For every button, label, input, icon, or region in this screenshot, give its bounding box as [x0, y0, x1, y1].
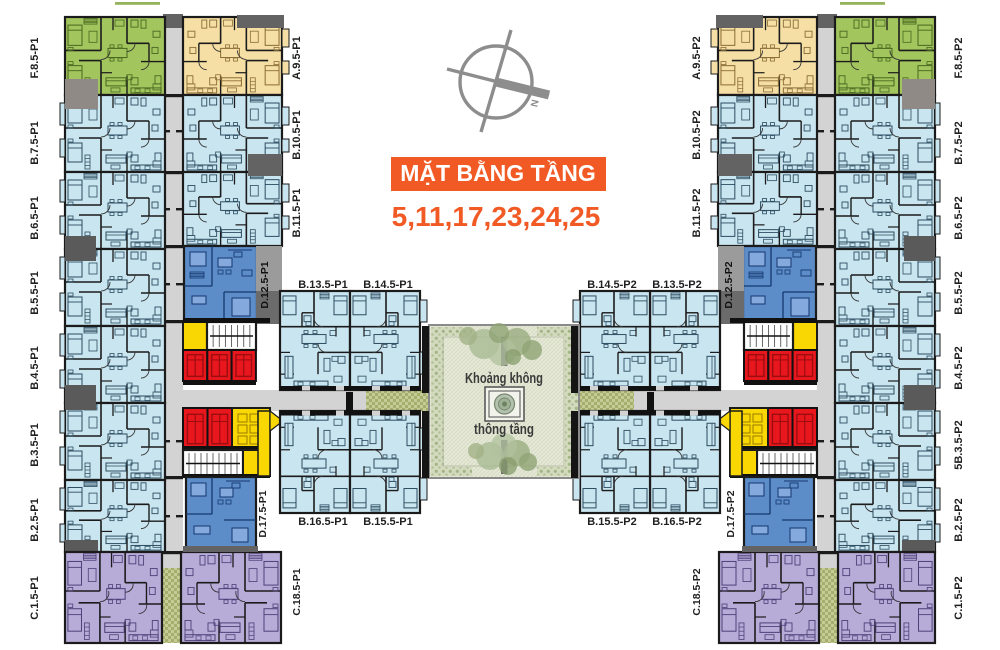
svg-text:B.13.5-P1: B.13.5-P1	[298, 279, 348, 291]
svg-text:B.5.5-P2: B.5.5-P2	[953, 271, 965, 314]
svg-text:B.7.5-P2: B.7.5-P2	[953, 121, 965, 164]
svg-text:B.3.5-P1: B.3.5-P1	[29, 423, 41, 466]
svg-text:C.1.5-P1: C.1.5-P1	[29, 576, 41, 619]
svg-text:F.8.5-P2: F.8.5-P2	[953, 38, 965, 79]
svg-text:B.14.5-P1: B.14.5-P1	[363, 279, 413, 291]
svg-text:B.5.5-P1: B.5.5-P1	[29, 271, 41, 314]
svg-text:B.4.5-P1: B.4.5-P1	[29, 346, 41, 389]
svg-text:B.13.5-P2: B.13.5-P2	[652, 279, 702, 291]
svg-text:D.12.5-P2: D.12.5-P2	[723, 261, 735, 308]
svg-text:C.18.5-P1: C.18.5-P1	[291, 568, 303, 615]
svg-text:F.8.5-P1: F.8.5-P1	[29, 38, 41, 79]
svg-text:5B.3.5-P2: 5B.3.5-P2	[953, 420, 965, 470]
svg-text:B.2.5-P1: B.2.5-P1	[29, 498, 41, 541]
svg-text:B.6.5-P1: B.6.5-P1	[29, 196, 41, 239]
svg-text:A.9.5-P2: A.9.5-P2	[691, 36, 703, 79]
svg-text:B.15.5-P1: B.15.5-P1	[363, 516, 413, 528]
svg-text:MẶT BẰNG TẦNG: MẶT BẰNG TẦNG	[400, 159, 595, 186]
svg-text:B.16.5-P1: B.16.5-P1	[298, 516, 348, 528]
svg-text:B.2.5-P2: B.2.5-P2	[953, 498, 965, 541]
svg-text:B.11.5-P2: B.11.5-P2	[691, 189, 703, 238]
svg-text:B.4.5-P2: B.4.5-P2	[953, 346, 965, 389]
svg-text:B.11.5-P1: B.11.5-P1	[291, 189, 303, 238]
svg-text:5,11,17,23,24,25: 5,11,17,23,24,25	[392, 201, 601, 232]
svg-text:B.16.5-P2: B.16.5-P2	[652, 516, 702, 528]
svg-text:D.17.5-P2: D.17.5-P2	[725, 490, 737, 537]
svg-text:B.7.5-P1: B.7.5-P1	[29, 121, 41, 164]
svg-text:B.6.5-P2: B.6.5-P2	[953, 196, 965, 239]
svg-text:C.1.5-P2: C.1.5-P2	[953, 576, 965, 619]
svg-text:B.15.5-P2: B.15.5-P2	[587, 516, 637, 528]
svg-text:thông tầng: thông tầng	[474, 421, 534, 438]
svg-text:B.14.5-P2: B.14.5-P2	[587, 279, 637, 291]
svg-text:D.17.5-P1: D.17.5-P1	[257, 490, 269, 537]
svg-text:C.18.5-P2: C.18.5-P2	[691, 568, 703, 615]
svg-text:A.9.5-P1: A.9.5-P1	[291, 36, 303, 79]
svg-text:B.10.5-P2: B.10.5-P2	[691, 110, 703, 160]
svg-text:B.10.5-P1: B.10.5-P1	[291, 110, 303, 160]
svg-text:Khoảng không: Khoảng không	[465, 370, 543, 387]
svg-text:D.12.5-P1: D.12.5-P1	[259, 261, 271, 308]
